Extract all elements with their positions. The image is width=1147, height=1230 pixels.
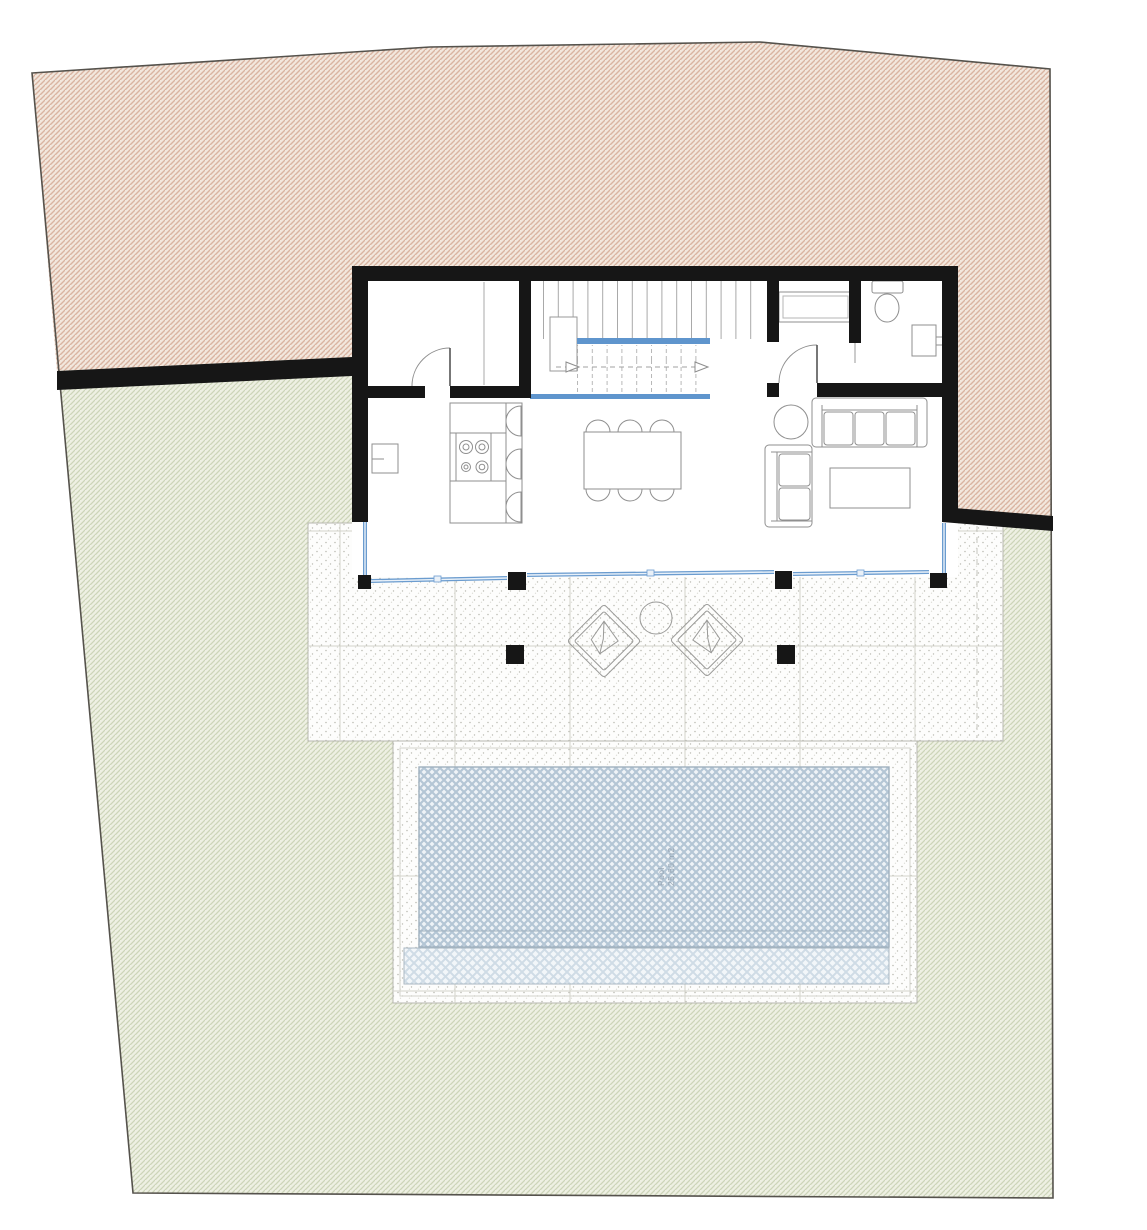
stair-balustrade-bottom — [530, 394, 710, 399]
wall-entry-south-left — [352, 386, 425, 398]
stair-lower-flight-treads — [577, 345, 710, 396]
pool-label-name: Pool — [656, 867, 666, 886]
wall-bath-south — [817, 383, 943, 397]
wall-bath-partition — [849, 280, 861, 343]
stair-balustrade-mid — [577, 338, 710, 344]
kitchen-island — [450, 403, 522, 523]
wall-bath-south-stub — [767, 383, 779, 397]
pool-label-area: 25,60 m2 — [666, 847, 676, 886]
facade-column-2 — [775, 571, 792, 589]
cooktop — [456, 433, 491, 481]
site-plan: Pool 25,60 m2 — [0, 0, 1147, 1230]
coffee-table — [830, 468, 910, 508]
pool-shallow-ledge — [404, 948, 889, 984]
facade-column-1 — [508, 572, 526, 590]
refrigerator — [372, 444, 398, 473]
facade-mullion-east — [930, 573, 947, 588]
bar-stools — [506, 406, 521, 522]
side-table — [774, 405, 808, 439]
terrace-column-2 — [777, 645, 795, 664]
wall-north — [352, 266, 958, 281]
floor-plan-canvas: Pool 25,60 m2 — [0, 0, 1147, 1230]
sofa-small — [765, 445, 812, 527]
wall-entry-east — [519, 266, 531, 390]
terrace-column-1 — [506, 645, 524, 664]
facade-mullion-west — [358, 575, 371, 589]
sofa-large — [812, 398, 927, 447]
pool: Pool 25,60 m2 — [404, 767, 889, 984]
pool-basin — [419, 767, 889, 947]
wall-bath-west — [767, 266, 779, 342]
dining-table — [584, 432, 681, 489]
wall-entry-south-right — [450, 386, 531, 398]
shower-tray — [779, 292, 852, 322]
wall-east — [942, 266, 958, 522]
stair-rail — [550, 317, 577, 371]
